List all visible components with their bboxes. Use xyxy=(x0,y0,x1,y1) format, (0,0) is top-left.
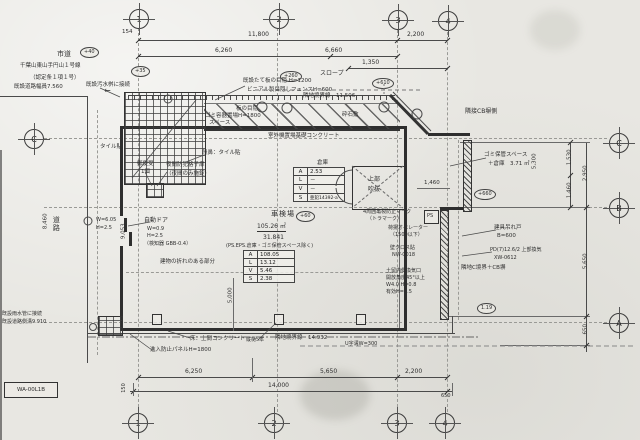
tora-mark-label-2: （トラマーク） xyxy=(367,216,402,222)
road-note-label: （認定条１項１号） xyxy=(30,75,80,82)
dim-11800: 11,800 xyxy=(248,31,269,38)
grid-bubble-right-A: A xyxy=(609,313,629,333)
grid-label: 2 xyxy=(276,15,281,24)
tora-mark-label-1: 4周囲亀裂防止マーク xyxy=(363,209,411,215)
door-mark-circle xyxy=(84,217,92,225)
void-label-1: 上部 xyxy=(368,176,380,183)
ps-label: PS xyxy=(427,213,433,219)
adjacent-cb-label: 隣接CB塀側 xyxy=(465,108,497,115)
cb-wall-end xyxy=(452,316,453,333)
grid-bubble-left-C: C xyxy=(24,129,44,149)
auto-door-leaf-2 xyxy=(129,232,132,246)
table-cell: L xyxy=(294,176,308,185)
dim-line-top-1 xyxy=(138,40,447,41)
cb-wall-label: 隣地C境界＋CB塀 xyxy=(461,265,505,272)
grid-label: 3 xyxy=(395,16,400,25)
grid-bubble-right-B: B xyxy=(609,198,629,218)
fence-label-1: 既設たて板の目隠 H=1200 xyxy=(243,78,312,85)
dim-line-bottom-1 xyxy=(138,377,447,378)
operator-label-2: （1500以下） xyxy=(390,232,423,238)
dim-1460: 1,460 xyxy=(424,180,440,187)
manhole-circle xyxy=(90,324,97,331)
night-door-label-1: 夜間防犯格子扉 xyxy=(166,162,205,169)
road-edge-top xyxy=(0,96,87,97)
room-area-m2: 105.26 ㎡ xyxy=(257,223,286,230)
vent-label-3: W4.0 H=0.8 xyxy=(386,282,416,288)
hanging-door-label-1: 建具吊れ戸 xyxy=(494,225,522,232)
nosing-label: 段鼻：タイル貼 xyxy=(202,150,241,157)
table-row: V5.46 xyxy=(244,267,295,275)
dim-ext xyxy=(133,383,134,396)
grid-line-A xyxy=(44,322,607,323)
hanging-door-label-2: B=600 xyxy=(497,233,516,240)
room-note: (PS.EPS.倉庫・ゴミ保管スペース除く) xyxy=(226,243,313,249)
mailbox-label-2: 1個 xyxy=(141,169,150,176)
outdoor-unit-label: 室外機置場基礎コンクリート xyxy=(268,133,340,140)
level-marker-35: +35 xyxy=(131,66,150,77)
cb-wall-top xyxy=(428,133,470,136)
boundary-bottom-label: 隣地境界線 14.932 xyxy=(275,335,327,342)
dim-ext xyxy=(252,358,253,382)
table-cell: A xyxy=(294,168,308,176)
table-row: A2.53 xyxy=(294,168,345,176)
grid-line-1 xyxy=(138,28,139,412)
table-cell: － xyxy=(308,176,345,185)
sewer-bottom-label-1: 既設雨水管に接続 xyxy=(2,311,42,317)
sd-label-2: H=2.5 xyxy=(96,225,112,231)
tile-label: タイル貼 xyxy=(100,144,122,151)
grid-label: 3 xyxy=(394,419,399,428)
table-cell: 13.12 xyxy=(258,259,295,267)
table-cell: L xyxy=(244,259,258,267)
scan-smudge xyxy=(530,10,580,50)
auto-door-label-2: W=0.9 xyxy=(147,226,164,232)
pd-label-2: XW-0612 xyxy=(494,255,517,261)
dim-1350: 1,350 xyxy=(362,59,379,66)
table-cell: 亜鉛14392-a xyxy=(308,194,345,202)
grid-label: B xyxy=(616,204,622,213)
grid-bubble-right-C: C xyxy=(609,133,629,153)
void-label-2: 吹抜 xyxy=(368,186,380,193)
grid-bubble-bottom-4: 4 xyxy=(435,413,455,433)
table-cell: A xyxy=(244,251,258,259)
direction-arrow: ← xyxy=(104,86,111,96)
table-row: S2.38 xyxy=(244,275,295,283)
dim-154: 154 xyxy=(122,29,133,36)
grid-label: 4 xyxy=(442,419,447,428)
dim-8460: 8,460 xyxy=(43,204,50,238)
downpipe-tab xyxy=(152,314,162,325)
road-width-label: 既設道路幅員7.560 xyxy=(14,84,63,91)
table-cell: 2.38 xyxy=(258,275,295,283)
room-area-tsubo: 31.841 xyxy=(263,234,284,241)
dim-5650-r: 5,650 xyxy=(583,244,590,278)
dim-line-1460 xyxy=(417,188,450,189)
bend-label: 建物の折れのある部分 xyxy=(160,259,215,266)
grid-bubble-top-3: 3 xyxy=(388,10,408,30)
mailbox-label-1: 郵便受 xyxy=(137,161,154,168)
grid-bubble-bottom-2: 2 xyxy=(264,413,284,433)
storage-spec-table: A2.53 L－ V－ S亜鉛14392-a xyxy=(293,167,345,202)
floor-plan-sheet: 1 2 3 4 1 2 3 4 C C B A 154 11,800 2,200… xyxy=(0,0,640,440)
cross-label-2: NW-0018 xyxy=(392,252,415,258)
level-marker-60: +60 xyxy=(296,211,315,222)
dim-ext xyxy=(448,316,590,317)
dim-ext xyxy=(452,383,453,396)
trash-box-label-2: スペース xyxy=(209,120,230,127)
vent-label-1: 土留内側換気口 xyxy=(386,268,421,274)
table-cell: V xyxy=(244,267,258,275)
dim-5650-b: 5,650 xyxy=(320,368,337,375)
table-cell: 108.05 xyxy=(258,251,295,259)
dim-6660: 6,660 xyxy=(325,47,342,54)
dim-2200-top: 2,200 xyxy=(407,31,424,38)
grid-label: 4 xyxy=(445,17,450,26)
road-edge-side xyxy=(87,96,88,363)
table-cell: S xyxy=(244,275,258,283)
table-row: L－ xyxy=(294,176,345,185)
dim-2200-b: 2,200 xyxy=(405,368,422,375)
level-marker-119: 1.19 xyxy=(477,303,496,314)
table-row: L13.12 xyxy=(244,259,295,267)
dim-650-b: 650 xyxy=(441,393,451,399)
dim-6250: 6,250 xyxy=(185,368,202,375)
cross-label-1: 壁クロス貼 xyxy=(390,245,415,251)
auto-door-leaf-1 xyxy=(124,218,127,232)
stamp-box: WA-00L1B xyxy=(4,382,58,398)
floor-label: 床：土間コンクリート xyxy=(190,336,245,343)
grid-bubble-bottom-3: 3 xyxy=(387,413,407,433)
dim-1530: 1,530 xyxy=(567,140,574,174)
dim-5300: 5,300 xyxy=(532,144,539,178)
trash-space-label-2: ＋倉庫 3.71 ㎡ xyxy=(488,161,530,168)
grid-bubble-bottom-1: 1 xyxy=(128,413,148,433)
cb-boundary-dash xyxy=(458,140,459,320)
level-marker-610: +610 xyxy=(372,78,394,89)
trash-box-label-1: ゴミ容器置場 xyxy=(205,113,238,120)
dim-line-bottom-2 xyxy=(130,391,452,392)
dim-14000: 14,000 xyxy=(268,382,289,389)
site-line-bottom xyxy=(88,333,455,334)
stair-block-lower xyxy=(146,183,164,198)
operator-label-1: 荷揚オペレーター xyxy=(388,225,428,231)
main-spec-table: A108.05 L13.12 V5.46 S2.38 xyxy=(243,250,295,283)
leader xyxy=(462,230,496,236)
road-type-label: 市道 xyxy=(57,50,71,58)
table-row: V－ xyxy=(294,185,345,194)
cb-wall-lower xyxy=(440,210,449,320)
panel-label: 進入防止パネルH=1800 xyxy=(150,347,211,354)
vent-label-2: 開放角度45°以上 xyxy=(386,275,425,281)
auto-door-label-4: （検知器 GBB-0.4） xyxy=(144,241,191,247)
level-marker-40: +40 xyxy=(80,47,99,58)
trash-space-label-1: ゴミ保管スペース xyxy=(484,152,527,159)
auto-door-label-3: H=2.5 xyxy=(147,233,163,239)
grid-label: 1 xyxy=(136,15,141,24)
entrance-step-block xyxy=(98,316,123,336)
table-row: A108.05 xyxy=(244,251,295,259)
board-fence-label-2: H=1800 xyxy=(238,113,261,120)
ditch-label: U字溝W=300 xyxy=(345,341,377,347)
grid-label: 1 xyxy=(135,419,140,428)
cb-wall-upper xyxy=(463,140,472,212)
wall-left-upper xyxy=(120,126,123,216)
table-cell: V xyxy=(294,185,308,194)
leader xyxy=(130,334,152,350)
grid-line-2 xyxy=(277,28,278,412)
table-cell: 2.53 xyxy=(308,168,345,176)
dim-150: 150 xyxy=(121,371,127,405)
gravel-label: 砕石敷 xyxy=(342,112,359,119)
grid-bubble-top-4: 4 xyxy=(438,11,458,31)
night-door-label-2: （夜間のみ施錠） xyxy=(166,171,210,178)
grid-label: 2 xyxy=(271,419,276,428)
board-fence-label-1: 板の目隠 xyxy=(236,106,258,113)
sewer-bottom-label-2: 既設道路側溝9.910 xyxy=(2,319,46,325)
vent-label-4: 有効H=0.5 xyxy=(386,289,412,295)
grid-label: C xyxy=(31,135,37,144)
dim-650-r: 650 xyxy=(583,312,590,346)
table-row: S亜鉛14392-a xyxy=(294,194,345,202)
sd-label-1: W=6.05 xyxy=(96,217,116,223)
area-m2-value: 105.26 ㎡ xyxy=(257,223,286,232)
dim-ext xyxy=(500,345,590,346)
dim-line-top-2 xyxy=(138,56,397,57)
downpipe-tab xyxy=(274,314,284,325)
downpipe-tab xyxy=(356,314,366,325)
dim-5000: 5,000 xyxy=(228,278,235,312)
level-marker-660: +660 xyxy=(474,189,496,200)
slope-label: スロープ xyxy=(320,70,344,77)
auto-door-label-1: 自動ドア xyxy=(144,217,168,224)
grid-label: C xyxy=(616,139,622,148)
storage-table-title: 倉庫 xyxy=(317,160,328,167)
dim-2950: 2,950 xyxy=(583,156,590,190)
stamp-text: WA-00L1B xyxy=(17,387,45,393)
wall-bottom xyxy=(120,328,407,331)
table-cell: 5.46 xyxy=(258,267,295,275)
grid-bubble-top-1: 1 xyxy=(129,9,149,29)
grid-bubble-top-2: 2 xyxy=(269,9,289,29)
leader xyxy=(462,252,492,256)
road-name-label: 千葉山東山手円山１号線 xyxy=(20,63,81,70)
road-label: 道路 xyxy=(52,216,60,232)
dim-6260: 6,260 xyxy=(215,47,232,54)
table-cell: － xyxy=(308,185,345,194)
downpipe-label: 縦樋5本 xyxy=(246,337,264,343)
grid-label: A xyxy=(616,319,621,328)
pd-label-1: PD(7)12.6/2 上部換気 xyxy=(490,247,542,253)
dim-line-top-3 xyxy=(348,68,447,69)
boundary-top-label: 隣地境界線 11.506 xyxy=(303,93,355,100)
dim-1460-r: 1,460 xyxy=(567,173,574,207)
table-cell: S xyxy=(294,194,308,202)
post-circle xyxy=(412,109,422,119)
scan-edge xyxy=(0,150,2,440)
room-name: 車検場 xyxy=(271,210,295,218)
